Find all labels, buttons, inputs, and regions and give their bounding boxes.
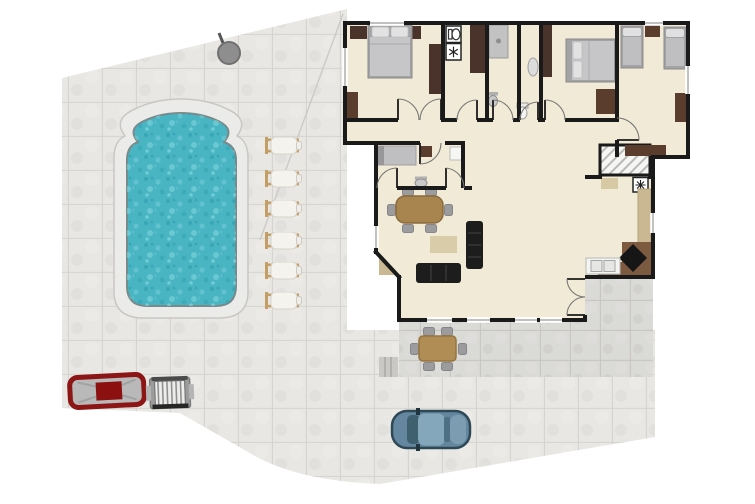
outdoor-chair	[424, 363, 435, 371]
single-bed	[621, 26, 643, 68]
double-bed	[368, 25, 412, 78]
dining-chair	[403, 225, 414, 233]
window	[685, 66, 691, 94]
nightstand	[420, 146, 432, 157]
nightstand	[645, 25, 660, 37]
dining-chair	[388, 205, 396, 216]
window	[370, 20, 404, 26]
window	[342, 48, 348, 86]
window	[427, 317, 452, 323]
bbq-grill	[145, 376, 194, 410]
wardrobe	[429, 44, 443, 94]
blue-car-roof	[418, 414, 445, 446]
window	[373, 226, 379, 248]
dining-chair	[445, 205, 453, 216]
swimming-pool	[114, 99, 248, 318]
window	[650, 213, 656, 233]
dresser	[625, 145, 666, 156]
washing-machine-icon	[446, 44, 461, 61]
outdoor-chair	[442, 363, 453, 371]
grill-grate	[155, 380, 186, 405]
outdoor-chair	[411, 344, 419, 355]
linen-closet	[470, 25, 485, 73]
patio-steps	[379, 357, 398, 377]
kitchen-counter	[638, 189, 651, 244]
floor-plan-canvas	[0, 0, 755, 504]
wardrobe	[543, 25, 552, 77]
basin	[415, 177, 427, 188]
outdoor-chair	[442, 328, 453, 336]
window	[540, 317, 562, 323]
kitchen-sink	[586, 258, 620, 274]
dining-table	[396, 196, 443, 223]
window	[645, 20, 663, 26]
outdoor-chair	[459, 344, 467, 355]
daybed	[378, 146, 416, 165]
pool-water-texture	[127, 113, 236, 306]
window	[467, 317, 490, 323]
kitchen-cabinet	[601, 178, 618, 189]
wardrobe	[350, 26, 367, 39]
red-car-roof	[96, 381, 123, 400]
double-bed	[566, 39, 615, 82]
toilet-icon	[446, 26, 461, 43]
rug	[430, 236, 457, 253]
dresser	[675, 93, 687, 122]
outdoor-dining-table	[419, 336, 456, 361]
blue-car	[392, 408, 470, 451]
single-bed	[664, 27, 686, 69]
dresser	[346, 92, 358, 118]
red-car	[69, 374, 144, 408]
sofa-horizontal	[416, 263, 461, 283]
sofa-vertical	[466, 221, 483, 269]
outdoor-chair	[424, 328, 435, 336]
window	[515, 317, 537, 323]
dresser	[596, 89, 616, 114]
dining-chair	[426, 225, 437, 233]
boiler	[528, 58, 538, 76]
